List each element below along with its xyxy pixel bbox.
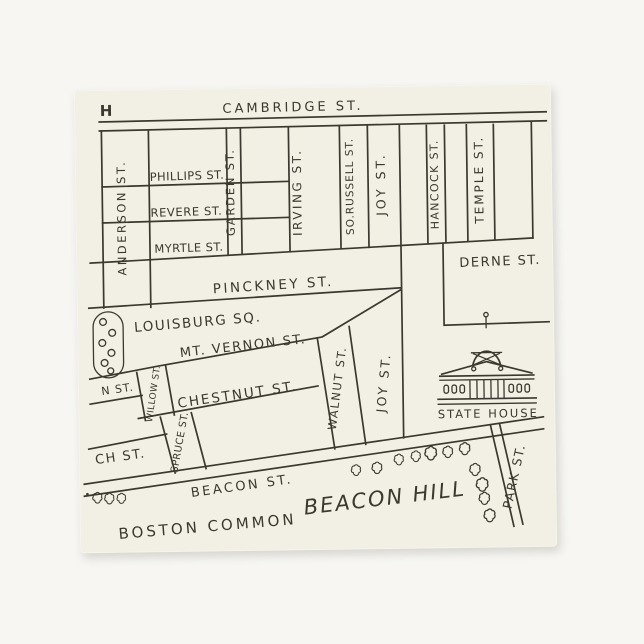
street-label-mt-vernon: MT. VERNON ST. [179, 332, 307, 361]
street-label-myrtle: MYRTLE ST. [154, 240, 223, 256]
garden-street-line-right [240, 128, 242, 254]
cut-off-letter-h: H [100, 102, 113, 120]
grid-right-boundary-line [531, 122, 533, 238]
joy-street-line-left-upper [367, 126, 369, 247]
street-label-derne: DERNE ST. [459, 253, 541, 271]
street-label-garden: GARDEN ST. [223, 148, 238, 236]
street-label-hancock: HANCOCK ST. [428, 139, 442, 229]
state-house-window [444, 385, 449, 393]
state-house-pediment [442, 361, 532, 374]
street-label-phillips: PHILLIPS ST. [149, 168, 224, 184]
state-house-window [452, 385, 457, 393]
n-street-line [90, 395, 142, 404]
grid-left-boundary-line [101, 131, 103, 308]
beacon-street-line-bottom [84, 429, 545, 496]
street-label-irving: IRVING ST. [290, 148, 305, 236]
street-label-so-russell: SO.RUSSELL ST. [343, 138, 356, 235]
street-label-anderson: ANDERSON ST. [114, 160, 130, 276]
spruce-street-line-right [191, 413, 206, 469]
street-label-park: PARK ST. [500, 442, 529, 510]
temple-street-line-left [466, 125, 468, 241]
landmark-label-boston-common: BOSTON COMMON [118, 510, 297, 543]
cambridge-street-line-2 [99, 121, 546, 131]
park-tree-circle [101, 360, 108, 367]
street-label-temple: TEMPLE ST. [471, 136, 486, 225]
park-tree-circle [100, 319, 107, 326]
state-house-entablature-2 [440, 379, 534, 380]
state-house-window [460, 385, 465, 393]
state-house-pediment-window [472, 367, 476, 371]
tree-icon [117, 493, 126, 503]
tree-icon [372, 462, 382, 474]
park-tree-circle [108, 349, 115, 356]
walnut-street-line-right [349, 326, 366, 444]
temple-street-line-right [493, 124, 495, 239]
street-label-spruce: SPRUCE ST. [169, 411, 191, 474]
state-house-entablature [440, 375, 534, 376]
street-label-joy-lower: JOY ST. [373, 352, 393, 414]
beacon-street: BEACON ST. [83, 417, 544, 503]
state-house-window [517, 384, 522, 392]
street-label-walnut: WALNUT ST. [325, 345, 349, 430]
landmark-label-beacon-hill: BEACON HILL [302, 477, 467, 520]
tree-icon [479, 492, 490, 504]
street-label-joy-upper: JOY ST. [373, 152, 389, 217]
hancock-street-line-right [444, 125, 446, 242]
park-tree-circle [108, 368, 114, 374]
ch-street-line [89, 434, 167, 449]
napkin: CAMBRIDGE ST. H [74, 84, 557, 554]
willow-street-line-right [166, 366, 175, 415]
tree-icon [443, 446, 453, 458]
street-label-cambridge: CAMBRIDGE ST. [222, 99, 363, 117]
joy-street-line-right [399, 126, 403, 438]
state-house-base-2 [438, 403, 536, 404]
tree-icon [394, 454, 403, 465]
street-label-revere: REVERE ST. [150, 204, 222, 220]
state-house-window [509, 384, 514, 392]
park-tree-circle [99, 340, 106, 347]
tree-icon [476, 478, 488, 492]
louisburg-square-park [93, 312, 124, 378]
state-house-base [438, 398, 536, 399]
irving-street-line-right [339, 127, 341, 249]
tree-icon [351, 465, 360, 476]
state-house-pediment-window [499, 366, 503, 370]
place-label-louisburg-sq: LOUISBURG SQ. [133, 309, 262, 336]
tree-icon [411, 451, 420, 462]
tree-icon [459, 443, 470, 455]
street-label-ch-st-partial: CH ST. [94, 446, 146, 468]
tree-icon [425, 446, 437, 460]
street-label-chestnut: CHESTNUT ST. [177, 378, 299, 411]
tree-icon [105, 493, 114, 504]
beacon-street-line-top [83, 417, 544, 484]
cambridge-street: CAMBRIDGE ST. H [99, 96, 546, 131]
street-label-n-st-partial: N ST. [100, 381, 134, 398]
state-house-window [525, 384, 530, 392]
street-label-beacon: BEACON ST. [190, 472, 294, 501]
tree-icon [484, 509, 495, 522]
tree-icon [470, 463, 481, 475]
park-tree-circle [109, 329, 116, 336]
beacon-hill-map: CAMBRIDGE ST. H [74, 84, 557, 554]
product-photo: CAMBRIDGE ST. H [0, 0, 644, 644]
